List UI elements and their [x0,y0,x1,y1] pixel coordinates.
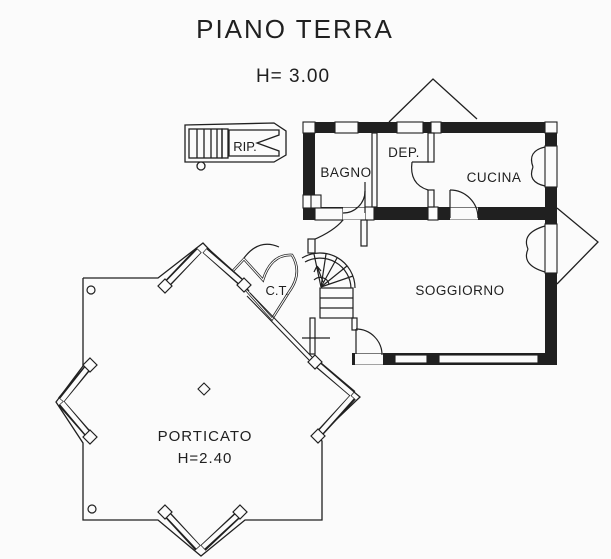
label-cucina: CUCINA [467,170,522,185]
floor-plan-sheet: PIANO TERRA H= 3.00 RIP. [0,0,611,559]
titles: PIANO TERRA H= 3.00 [196,14,394,87]
diagonal-piers [61,250,353,548]
column-bottom-left [88,505,96,513]
stairs [302,220,355,354]
label-porticato: PORTICATO [158,428,253,445]
room-labels: BAGNO DEP. CUCINA SOGGIORNO PORTICATO H=… [158,145,522,467]
floor-height-note: H= 3.00 [256,66,330,87]
label-porticato-height: H=2.40 [178,450,233,467]
label-bagno: BAGNO [320,165,371,180]
label-rip: RIP. [233,139,257,154]
door-swings [343,162,478,355]
pier-caps [83,278,325,519]
label-dep: DEP. [388,145,420,160]
diagonal-piers-core [62,251,352,547]
floor-plan-svg: PIANO TERRA H= 3.00 RIP. [0,0,611,559]
page-title: PIANO TERRA [196,14,394,44]
porticato [56,243,360,556]
center-column [198,383,210,395]
label-soggiorno: SOGGIORNO [415,283,504,298]
column-top-left [87,286,95,294]
label-ct: C.T. [265,283,288,298]
